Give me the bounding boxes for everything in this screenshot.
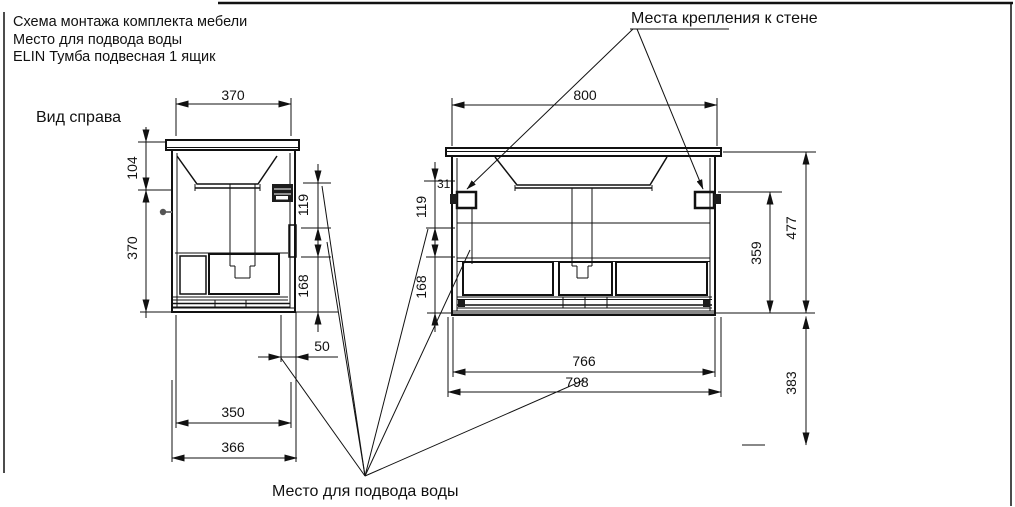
sheet-frame — [4, 3, 1013, 506]
side-basin — [177, 156, 277, 184]
dim-front-offset-bracket: 119 — [413, 196, 429, 219]
side-drawer — [172, 253, 290, 307]
dim-front-width-outer: 798 — [565, 374, 589, 390]
dim-front-top-width: 800 — [573, 87, 597, 103]
dim-front-bottom-clearance: 383 — [783, 371, 799, 395]
title-line-1: Схема монтажа комплекта мебели — [13, 14, 247, 30]
dim-side-width-outer: 366 — [221, 439, 245, 455]
title-block: Схема монтажа комплекта мебели Место для… — [13, 14, 247, 65]
side-wall-bracket — [272, 184, 293, 202]
assembly-drawing: Схема монтажа комплекта мебели Место для… — [0, 0, 1015, 507]
dim-front-width-inner: 766 — [572, 353, 596, 369]
front-wall-bracket-right — [695, 192, 721, 208]
dim-front-top-gap: 31 — [437, 177, 451, 191]
title-line-3: ELIN Тумба подвесная 1 ящик — [13, 49, 216, 65]
front-view-dim-labels: 800 31 119 168 359 477 383 766 798 — [413, 87, 799, 395]
dim-side-height-main: 370 — [124, 236, 140, 260]
dim-side-top-width: 370 — [221, 87, 245, 103]
water-supply-label: Место для подвода воды — [272, 483, 458, 500]
dim-front-total-height: 477 — [783, 216, 799, 240]
front-drain-pipe — [572, 188, 592, 278]
side-knob — [160, 209, 172, 215]
dim-side-offset-bracket: 119 — [295, 194, 311, 217]
front-wall-bracket-left — [450, 192, 476, 208]
dim-front-bracket-height: 359 — [748, 241, 764, 265]
dim-side-width-inner: 350 — [221, 404, 245, 420]
front-view-drawing — [446, 148, 721, 315]
dim-side-water-offset: 50 — [314, 338, 330, 354]
front-view-dimensions — [424, 98, 816, 445]
side-view-label: Вид справа — [36, 109, 121, 126]
title-line-2: Место для подвода воды — [13, 32, 182, 48]
dim-side-offset-opening: 168 — [295, 274, 311, 298]
assembly-drawing-sheet: Схема монтажа комплекта мебели Место для… — [0, 0, 1015, 507]
dim-side-height-top: 104 — [124, 156, 140, 180]
front-drawer — [457, 262, 712, 308]
side-view-drawing — [160, 140, 299, 312]
wall-mount-callout: Места крепления к стене — [467, 10, 818, 189]
side-drain-pipe — [230, 184, 255, 278]
wall-mount-label: Места крепления к стене — [631, 10, 818, 27]
front-basin — [495, 157, 667, 185]
